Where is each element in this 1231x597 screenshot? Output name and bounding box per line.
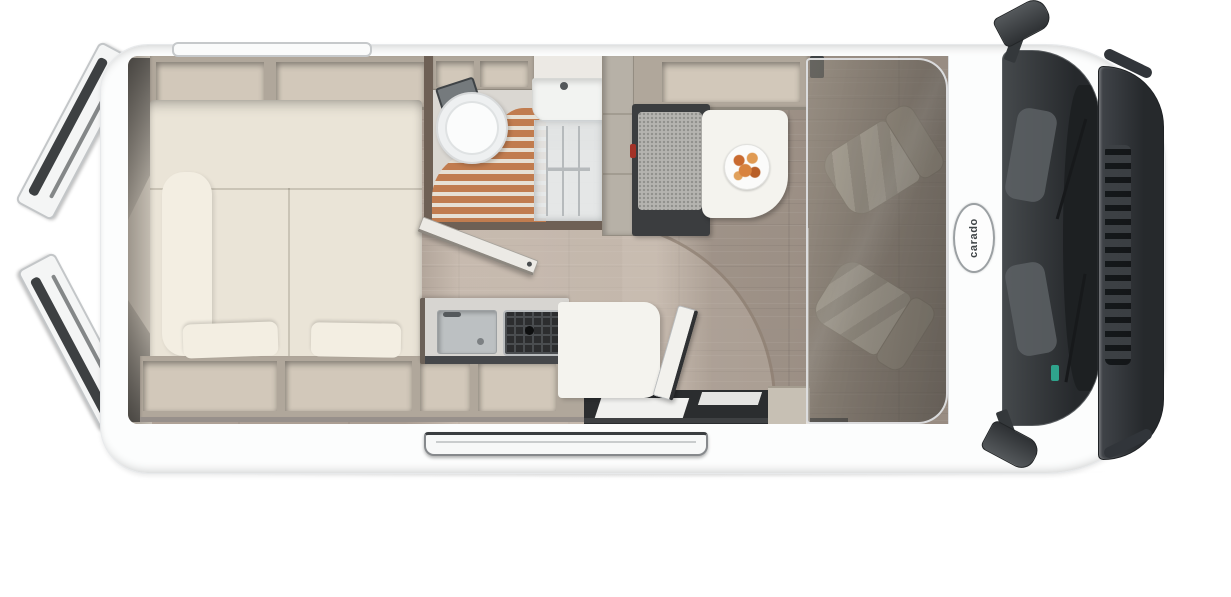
entry-step-upper (698, 392, 762, 405)
rear-door-top-window (27, 56, 108, 197)
brand-logo: carado (953, 203, 995, 273)
kitchen-counter (420, 298, 569, 364)
toilet (436, 92, 508, 164)
overhead-lockers-mid (630, 56, 808, 110)
locker-box (143, 361, 277, 411)
locker-box (478, 361, 556, 411)
campervan-floorplan-canvas: carado (0, 0, 1231, 597)
cabinet-shelf-line (603, 113, 633, 115)
bed-pillow-right (311, 322, 402, 358)
rear-door-bottom-window (29, 276, 110, 417)
brand-logo-text: carado (968, 218, 980, 258)
cabinet-shelf-line (603, 173, 633, 175)
side-mirror-top (992, 0, 1055, 49)
cab-seat-silhouette (1003, 260, 1058, 358)
locker-box (285, 361, 412, 411)
locker-box (156, 62, 264, 104)
windshield (1002, 50, 1100, 426)
shower-glass-bars (546, 126, 590, 216)
locker-box (276, 62, 424, 104)
bench-cushion (638, 112, 702, 210)
bed-pillow-left (182, 321, 278, 358)
front-grille (1098, 66, 1164, 460)
counter-front-band (425, 356, 569, 364)
locker-box (420, 361, 470, 411)
grille-slats (1105, 145, 1131, 365)
dashboard-item-teal (1051, 365, 1059, 381)
locker-front-edge (140, 417, 588, 422)
exterior-entry-step (424, 432, 708, 456)
hob-knob (525, 326, 534, 335)
door-handle (526, 261, 532, 267)
dinette-table (702, 110, 788, 218)
step-tread-line (436, 441, 696, 443)
shower-grate-main (432, 152, 546, 222)
cab-seat-silhouette (1003, 106, 1058, 204)
roof-window-strip (172, 42, 372, 57)
sink-faucet (443, 312, 461, 317)
cab-roof-window (806, 58, 948, 424)
bathroom (424, 56, 602, 230)
sink-drain (477, 338, 484, 345)
mattress-seam-vertical (288, 188, 290, 360)
entry-step-inner (595, 398, 689, 418)
dinner-plate (724, 144, 770, 190)
basin-faucet (560, 82, 568, 90)
overhead-lockers-bottom (140, 356, 588, 422)
floorplan-interior (128, 56, 1004, 424)
doorway-side-wall (768, 386, 810, 424)
seatbelt-buckle (630, 144, 636, 158)
dinette-bench (632, 104, 710, 236)
locker-box (662, 62, 800, 102)
kitchen-worktop-extension (558, 302, 660, 398)
washbasin (532, 78, 604, 122)
